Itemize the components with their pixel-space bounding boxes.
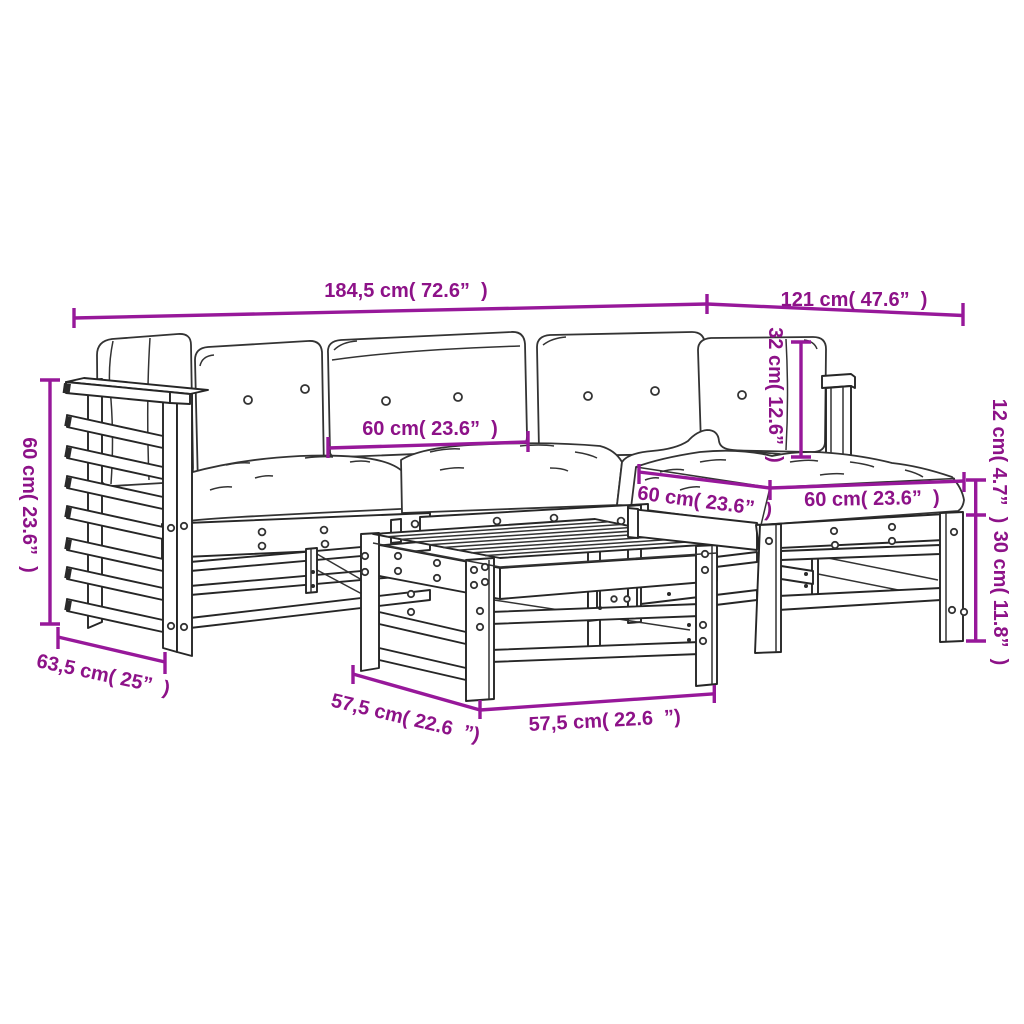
svg-text:60 cm( 23.6” ): 60 cm( 23.6” )	[804, 487, 940, 511]
svg-text:12 cm( 4.7” ): 12 cm( 4.7” )	[988, 399, 1010, 524]
svg-text:121 cm( 47.6” ): 121 cm( 47.6” )	[781, 289, 928, 311]
svg-text:60 cm( 23.6” ): 60 cm( 23.6” )	[18, 437, 40, 573]
svg-text:32 cm( 12.6” ): 32 cm( 12.6” )	[764, 327, 786, 463]
svg-text:30 cm( 11.8” ): 30 cm( 11.8” )	[989, 531, 1011, 666]
svg-text:184,5 cm( 72.6” ): 184,5 cm( 72.6” )	[324, 280, 487, 302]
svg-text:60 cm( 23.6” ): 60 cm( 23.6” )	[362, 418, 498, 440]
